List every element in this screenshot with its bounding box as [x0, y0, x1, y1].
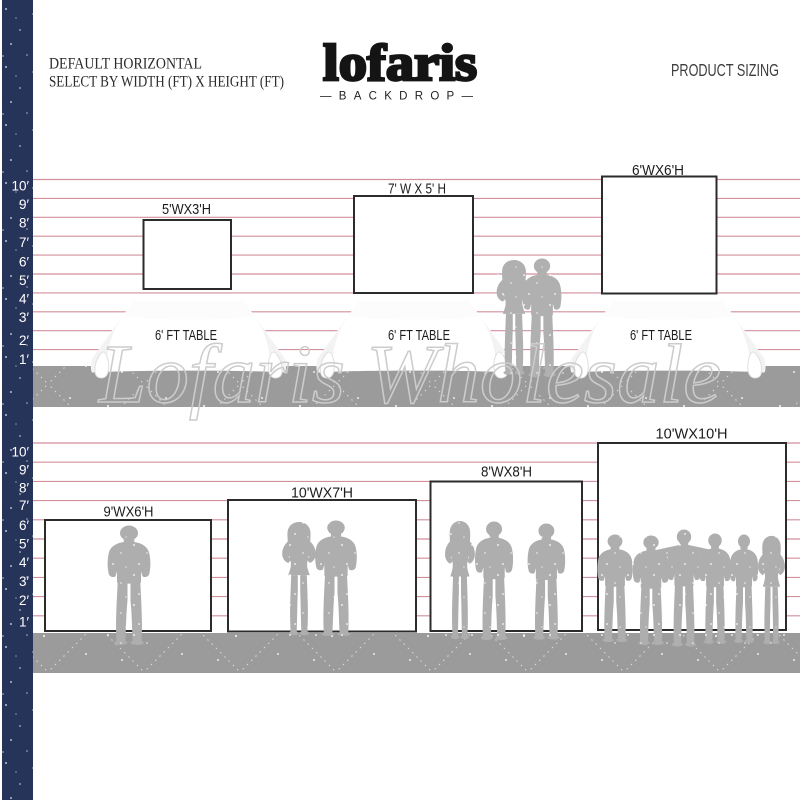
svg-text:DEFAULT HORIZONTAL: DEFAULT HORIZONTAL	[49, 56, 202, 73]
svg-text:2′: 2′	[19, 593, 30, 608]
svg-text:3′: 3′	[19, 310, 30, 325]
svg-text:4′: 4′	[19, 292, 30, 307]
svg-text:10'WX10'H: 10'WX10'H	[656, 427, 728, 443]
svg-text:SELECT BY WIDTH (FT) X HEIGHT: SELECT BY WIDTH (FT) X HEIGHT (FT)	[49, 74, 284, 91]
svg-text:7′: 7′	[19, 498, 30, 513]
svg-text:5'WX3'H: 5'WX3'H	[162, 202, 211, 218]
svg-text:3′: 3′	[19, 574, 30, 589]
svg-text:6′: 6′	[19, 254, 30, 269]
svg-text:Lofaris Wholesale: Lofaris Wholesale	[98, 328, 721, 421]
svg-text:8'WX8'H: 8'WX8'H	[481, 465, 532, 481]
svg-text:8′: 8′	[19, 216, 30, 231]
svg-text:6'WX6'H: 6'WX6'H	[632, 163, 684, 179]
svg-text:10′: 10′	[11, 445, 29, 460]
svg-text:10'WX7'H: 10'WX7'H	[291, 486, 353, 502]
svg-text:9'WX6'H: 9'WX6'H	[104, 505, 154, 521]
svg-text:10′: 10′	[11, 178, 29, 193]
svg-text:—BACKDROP—: —BACKDROP—	[320, 91, 480, 103]
svg-text:7′: 7′	[19, 235, 30, 250]
svg-text:1′: 1′	[19, 352, 30, 367]
svg-text:PRODUCT SIZING: PRODUCT SIZING	[671, 60, 779, 80]
svg-text:9′: 9′	[19, 197, 30, 212]
svg-text:lofaris: lofaris	[323, 35, 477, 92]
svg-text:8′: 8′	[19, 480, 30, 495]
svg-text:1′: 1′	[19, 615, 30, 630]
svg-text:5′: 5′	[19, 537, 30, 552]
svg-text:5′: 5′	[19, 273, 30, 288]
svg-text:6′: 6′	[19, 518, 30, 533]
svg-text:4′: 4′	[19, 555, 30, 570]
svg-text:7' W X 5' H: 7' W X 5' H	[388, 182, 446, 198]
svg-text:9′: 9′	[19, 462, 30, 477]
svg-text:2′: 2′	[19, 333, 30, 348]
